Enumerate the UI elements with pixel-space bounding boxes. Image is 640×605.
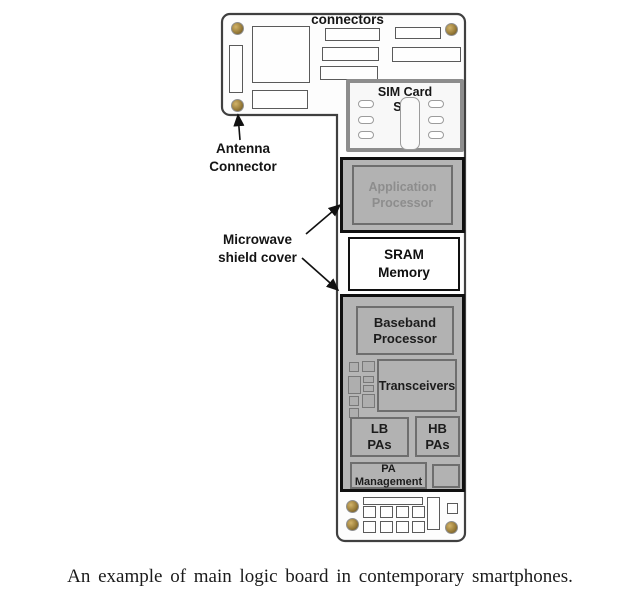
board-connector	[395, 27, 441, 39]
screw-icon	[445, 521, 458, 534]
smd-component	[380, 521, 393, 533]
smd-component	[362, 361, 375, 372]
large-ic-component	[252, 26, 310, 83]
smd-component	[412, 521, 425, 533]
sim-pad	[428, 116, 444, 124]
board-connector	[392, 47, 461, 62]
screw-icon	[346, 500, 359, 513]
sim-pad	[358, 131, 374, 139]
smd-component	[348, 376, 361, 394]
sim-pad	[358, 116, 374, 124]
smd-component	[349, 362, 359, 372]
pa-management-chip: PA Management	[350, 462, 427, 489]
figure-canvas: connectors SIM Card Slot Application Pro…	[0, 0, 640, 605]
sram-memory-chip: SRAM Memory	[348, 237, 460, 291]
sim-card-slot: SIM Card Slot	[346, 79, 464, 152]
smd-component	[380, 506, 393, 518]
hb-pas-chip: HB PAs	[415, 416, 460, 457]
unlabeled-chip	[432, 464, 460, 488]
smd-component	[396, 521, 409, 533]
board-connector	[325, 28, 380, 41]
smd-component	[396, 506, 409, 518]
screw-icon	[346, 518, 359, 531]
shield-arrow-upper	[306, 205, 340, 234]
figure-caption: An example of main logic board in contem…	[0, 566, 640, 588]
antenna-connector-label: Antenna Connector	[193, 140, 293, 175]
baseband-shield: Baseband Processor Transceivers LB PAs H…	[340, 294, 465, 492]
smd-component	[362, 394, 375, 408]
application-processor-shield: Application Processor	[340, 157, 465, 233]
application-processor-chip: Application Processor	[352, 165, 453, 225]
lb-pas-chip: LB PAs	[350, 417, 409, 457]
callout-arrows	[0, 0, 640, 605]
sim-pad	[358, 100, 374, 108]
microwave-shield-label: Microwave shield cover	[200, 231, 315, 266]
smd-component	[349, 396, 359, 406]
screw-icon	[231, 22, 244, 35]
board-connector	[427, 497, 440, 530]
smd-component	[363, 385, 374, 392]
smd-component	[363, 376, 374, 383]
sim-pad	[428, 131, 444, 139]
board-connector	[322, 47, 379, 61]
antenna-connector-screw-icon	[231, 99, 244, 112]
sim-pad	[428, 100, 444, 108]
edge-connector	[229, 45, 243, 93]
smd-component	[447, 503, 458, 514]
pcb-outline	[0, 0, 640, 605]
board-connector	[320, 66, 378, 80]
sim-slot-opening	[400, 97, 420, 150]
smd-component	[363, 521, 376, 533]
baseband-processor-chip: Baseband Processor	[356, 306, 454, 355]
board-connector	[252, 90, 308, 109]
screw-icon	[445, 23, 458, 36]
smd-component	[363, 506, 376, 518]
connectors-label: connectors	[295, 12, 400, 27]
antenna-arrow	[238, 115, 240, 140]
transceivers-chip: Transceivers	[377, 359, 457, 412]
board-connector	[363, 497, 423, 505]
smd-component	[412, 506, 425, 518]
